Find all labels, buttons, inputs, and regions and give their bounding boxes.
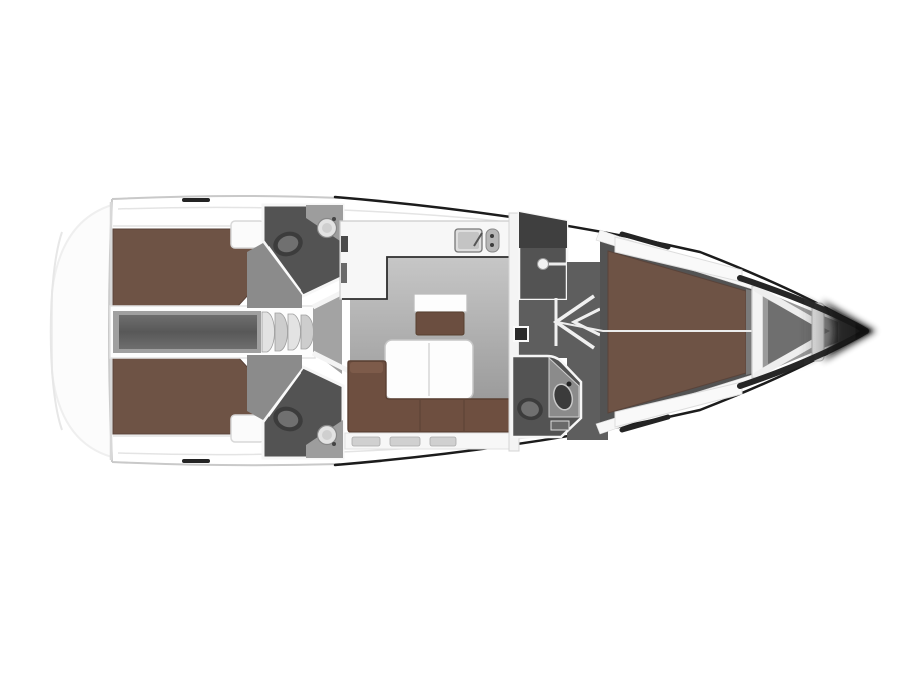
stern-platform — [52, 205, 112, 457]
salon — [340, 221, 512, 449]
locker-hatch — [352, 437, 380, 446]
stove-knob — [490, 234, 494, 238]
locker-hatch — [390, 437, 420, 446]
berth-head-shelf — [231, 221, 264, 248]
sink-faucet — [567, 382, 572, 387]
sink-faucet — [332, 442, 336, 446]
berth-head-shelf — [231, 415, 264, 442]
shower-bench — [519, 212, 567, 248]
bow-tip-gradient — [800, 292, 872, 370]
floor-hatch — [514, 327, 528, 341]
sink-faucet — [332, 217, 336, 221]
forward-bulkhead — [752, 286, 763, 378]
chart-table — [414, 294, 467, 312]
chart-seat — [416, 312, 464, 335]
aft-cabin-starboard — [113, 357, 264, 442]
storage-box — [551, 421, 569, 430]
deck-fitting-bottom — [182, 459, 210, 463]
shower-head-icon — [538, 259, 549, 270]
floor-plan-canvas — [0, 0, 900, 675]
locker-hatch — [430, 437, 456, 446]
deck-fitting-top — [182, 198, 210, 202]
companionway-steps — [262, 312, 314, 352]
shower-room — [519, 212, 567, 300]
galley-sink-basin — [458, 232, 479, 249]
yacht-floor-plan — [0, 0, 900, 675]
passage-inner — [119, 315, 257, 349]
sofa-armrest — [350, 362, 383, 373]
stove-knob — [490, 243, 494, 247]
galley-fitting — [341, 263, 347, 283]
sink-basin — [322, 223, 332, 233]
galley-stove-icon — [486, 229, 499, 252]
galley-fitting — [341, 236, 348, 252]
aft-cabin-port — [113, 221, 264, 306]
sink-basin — [322, 430, 332, 440]
